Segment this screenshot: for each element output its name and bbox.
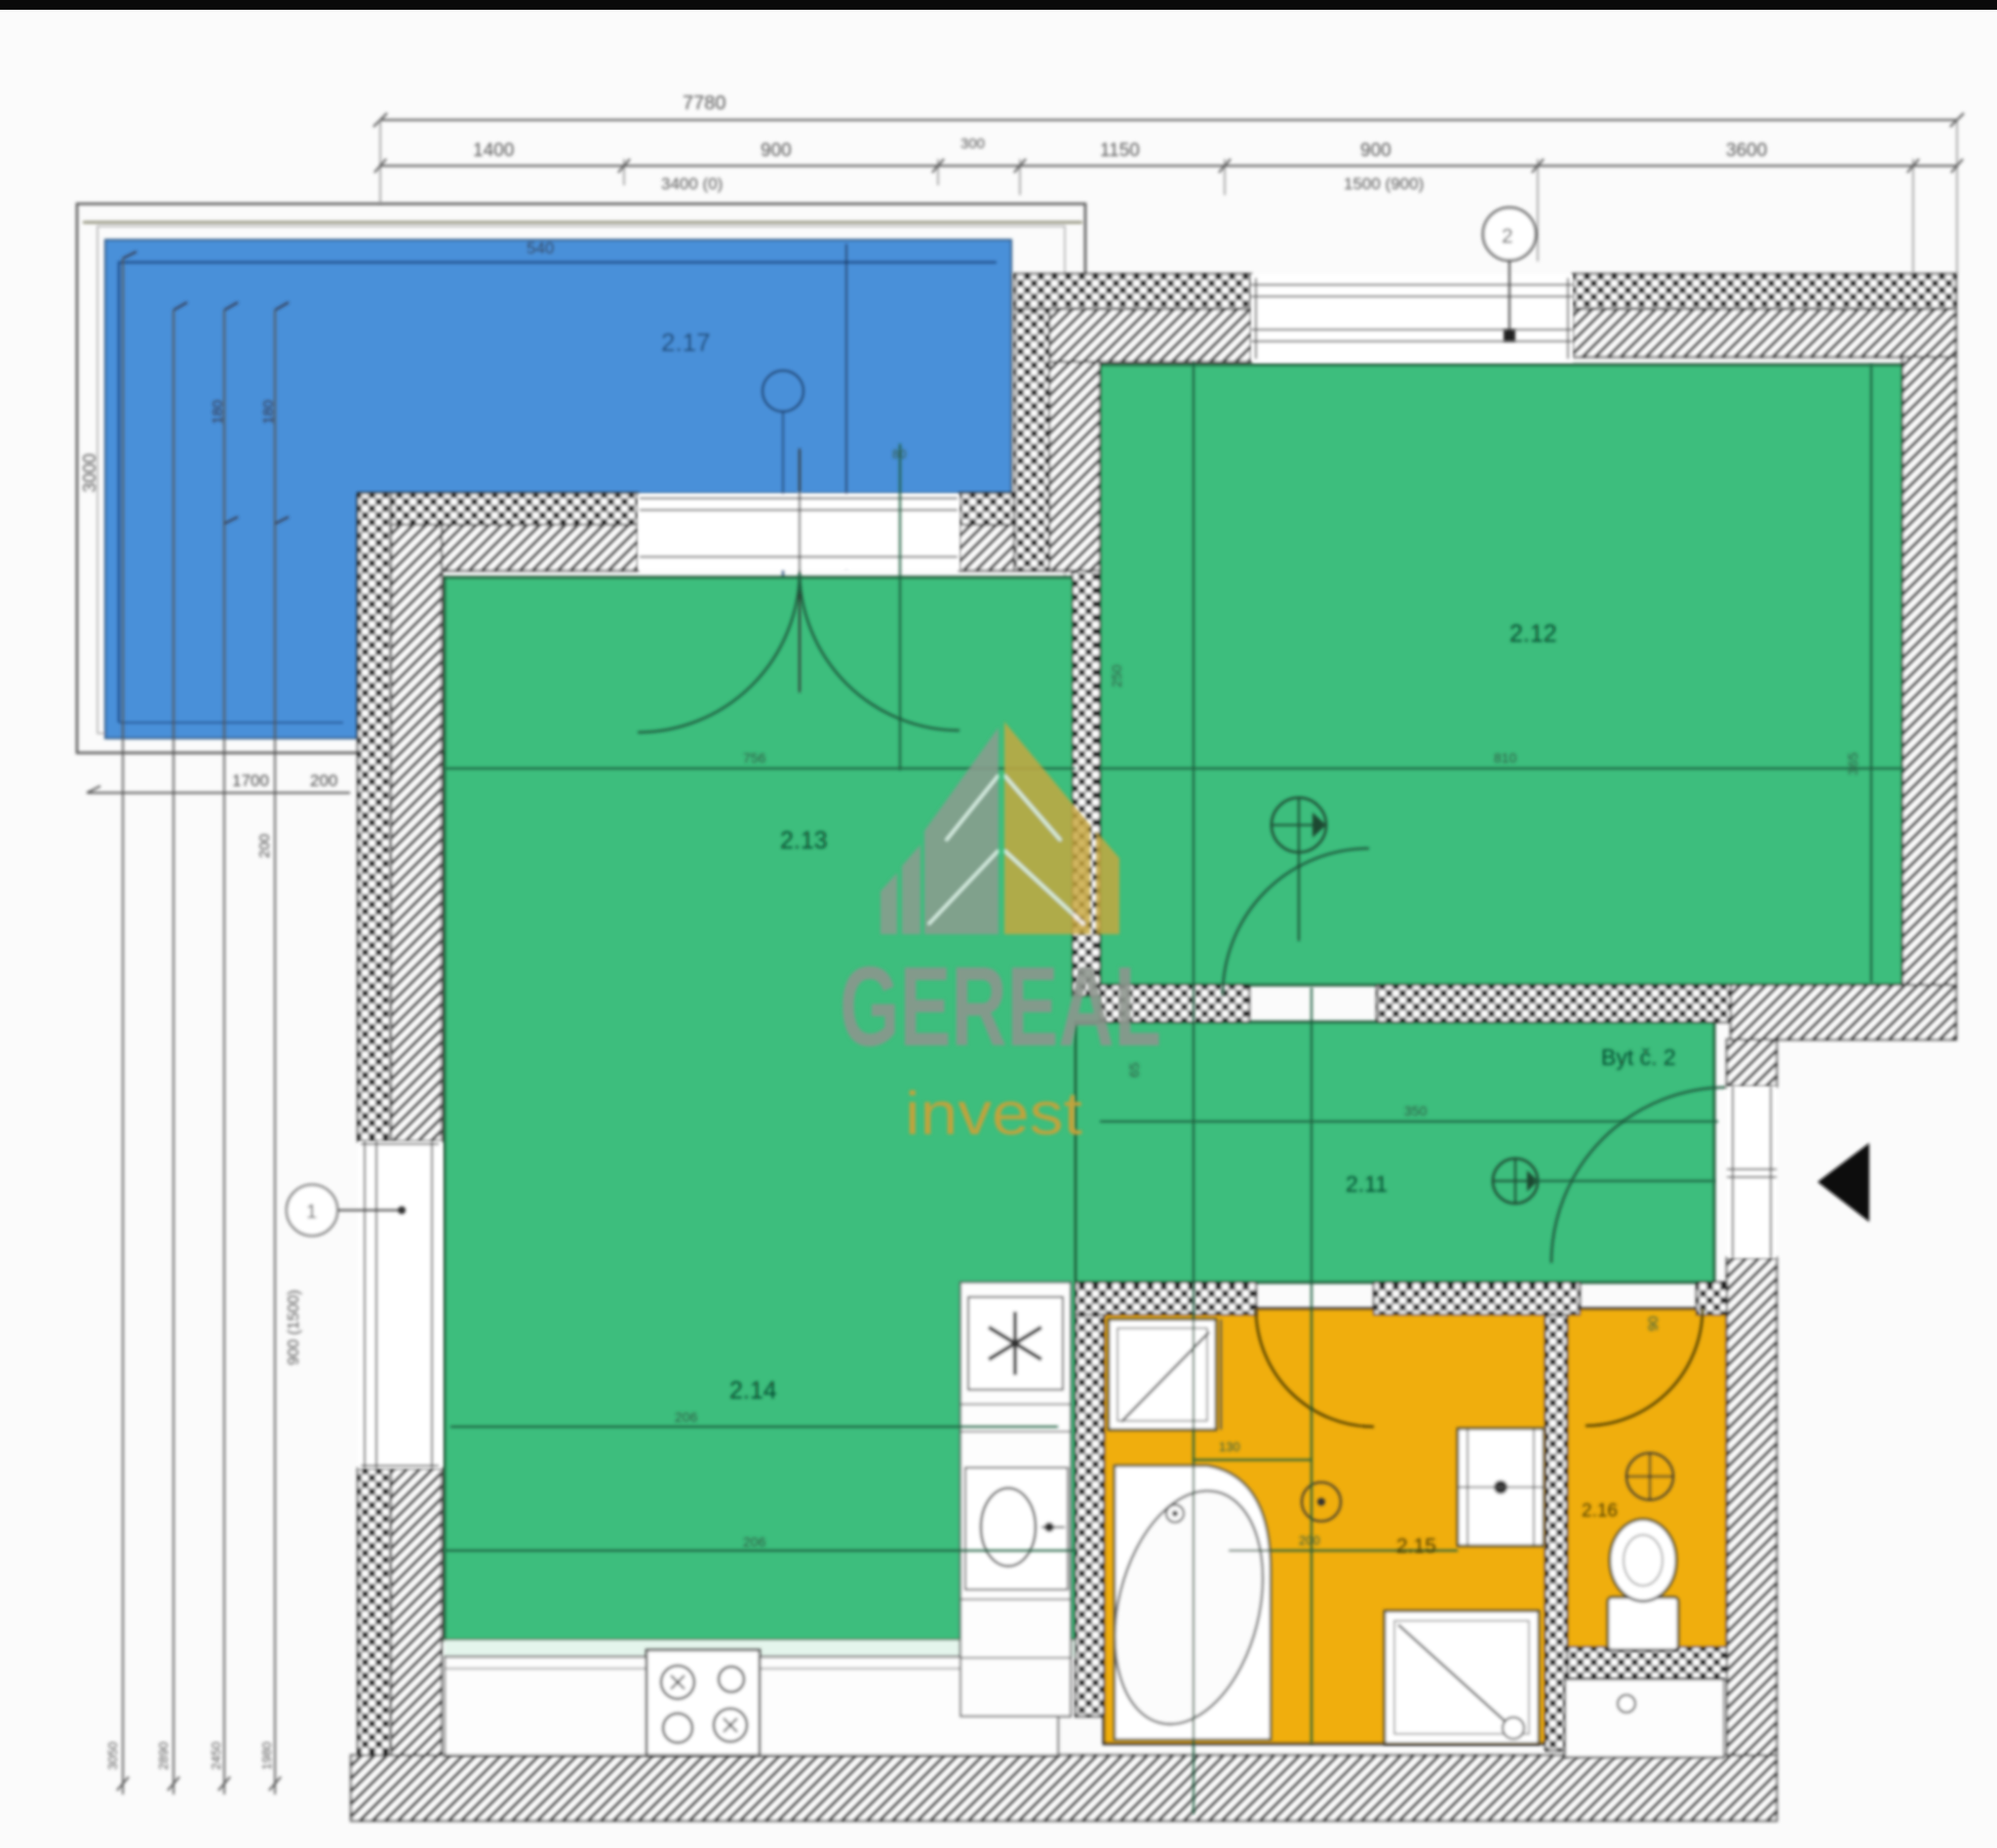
svg-text:130: 130 (1219, 1439, 1240, 1454)
svg-text:200: 200 (256, 834, 273, 858)
svg-text:2.14: 2.14 (729, 1377, 777, 1404)
svg-text:756: 756 (743, 750, 766, 766)
svg-text:180: 180 (260, 400, 277, 424)
svg-text:206: 206 (675, 1409, 698, 1425)
svg-text:2.12: 2.12 (1509, 620, 1557, 648)
svg-text:2890: 2890 (156, 1742, 171, 1770)
svg-text:900: 900 (761, 140, 792, 161)
svg-text:810: 810 (1494, 750, 1517, 766)
svg-text:900: 900 (1360, 140, 1391, 161)
svg-text:900 (1500): 900 (1500) (286, 1290, 302, 1365)
svg-text:1500 (900): 1500 (900) (1344, 175, 1424, 193)
svg-text:invest: invest (905, 1081, 1082, 1148)
svg-text:2.17: 2.17 (661, 328, 711, 357)
svg-text:2.16: 2.16 (1582, 1501, 1618, 1521)
svg-text:1400: 1400 (473, 140, 514, 161)
svg-text:206: 206 (743, 1534, 766, 1550)
svg-text:3050: 3050 (105, 1742, 120, 1770)
svg-text:90: 90 (1645, 1316, 1661, 1331)
svg-text:2.13: 2.13 (780, 827, 828, 854)
svg-text:1: 1 (306, 1201, 317, 1223)
svg-text:200: 200 (1299, 1533, 1320, 1548)
svg-text:1980: 1980 (259, 1742, 274, 1770)
svg-text:180: 180 (210, 400, 226, 424)
svg-text:GEREAL: GEREAL (840, 943, 1161, 1070)
svg-text:1150: 1150 (1100, 140, 1140, 161)
svg-text:3000: 3000 (80, 453, 99, 492)
svg-text:Byt č. 2: Byt č. 2 (1601, 1044, 1676, 1070)
svg-text:200: 200 (310, 771, 337, 790)
svg-text:80: 80 (892, 447, 906, 461)
svg-text:2.15: 2.15 (1396, 1535, 1436, 1557)
svg-text:2.11: 2.11 (1346, 1171, 1388, 1197)
svg-text:540: 540 (527, 239, 554, 257)
svg-text:2450: 2450 (209, 1742, 223, 1770)
svg-text:2: 2 (1502, 225, 1513, 248)
svg-text:1700: 1700 (232, 771, 269, 790)
svg-text:300: 300 (960, 136, 985, 152)
svg-text:3600: 3600 (1726, 140, 1767, 161)
svg-text:350: 350 (1404, 1103, 1428, 1119)
svg-text:7780: 7780 (683, 93, 726, 114)
svg-text:3400 (0): 3400 (0) (661, 175, 723, 193)
svg-text:365: 365 (1845, 752, 1860, 775)
svg-text:250: 250 (1109, 664, 1124, 688)
